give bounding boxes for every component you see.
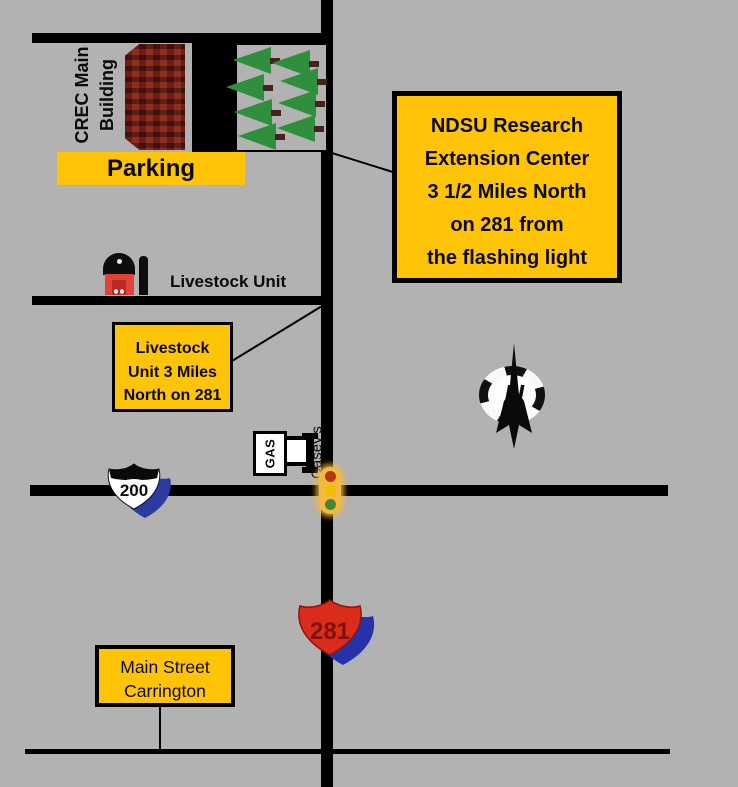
traffic-yellow-light <box>325 485 336 496</box>
route-281-number: 281 <box>310 618 350 645</box>
pine-tree-icon <box>278 90 326 117</box>
traffic-red-light <box>325 471 336 482</box>
main-street-connector-line <box>159 705 161 749</box>
silo-icon <box>139 256 148 295</box>
map-canvas: CREC Main Building Parking NDSU Research… <box>0 0 738 787</box>
ndsu-callout-box: NDSU Research Extension Center 3 1/2 Mil… <box>392 91 622 283</box>
highway-200-shield: 200 <box>106 462 176 522</box>
traffic-green-light <box>325 499 336 510</box>
gas-station-icon: GAS <box>253 431 287 476</box>
livestock-callout-box: Livestock Unit 3 Miles North on 281 <box>112 322 233 412</box>
parking-label: Parking <box>57 152 245 185</box>
pine-tree-icon <box>226 74 274 101</box>
livestock-leader-line <box>230 306 322 363</box>
livestock-unit-label: Livestock Unit <box>170 272 315 292</box>
crec-main-building-icon <box>125 44 185 150</box>
flashing-light-icon <box>319 467 341 514</box>
highway-281-shield: 281 <box>296 598 378 670</box>
barn-icon <box>103 253 135 275</box>
ndsu-leader-line <box>331 152 393 173</box>
gas-sign-label: GAS <box>263 439 278 469</box>
route-200-number: 200 <box>120 481 148 500</box>
barn-door-dot <box>114 289 118 294</box>
crec-building-label: CREC Main Building <box>70 40 122 150</box>
barn-roof-window <box>117 259 122 264</box>
pine-tree-icon <box>234 99 282 126</box>
main-street-callout-box: Main Street Carrington <box>95 645 235 707</box>
road-livestock-access <box>32 296 333 305</box>
barn-door-dot <box>120 289 124 294</box>
road-main-street <box>25 749 670 754</box>
pine-tree-icon <box>277 115 325 142</box>
compass-north-label: N <box>494 375 534 415</box>
gas-pump-icon <box>287 436 307 466</box>
